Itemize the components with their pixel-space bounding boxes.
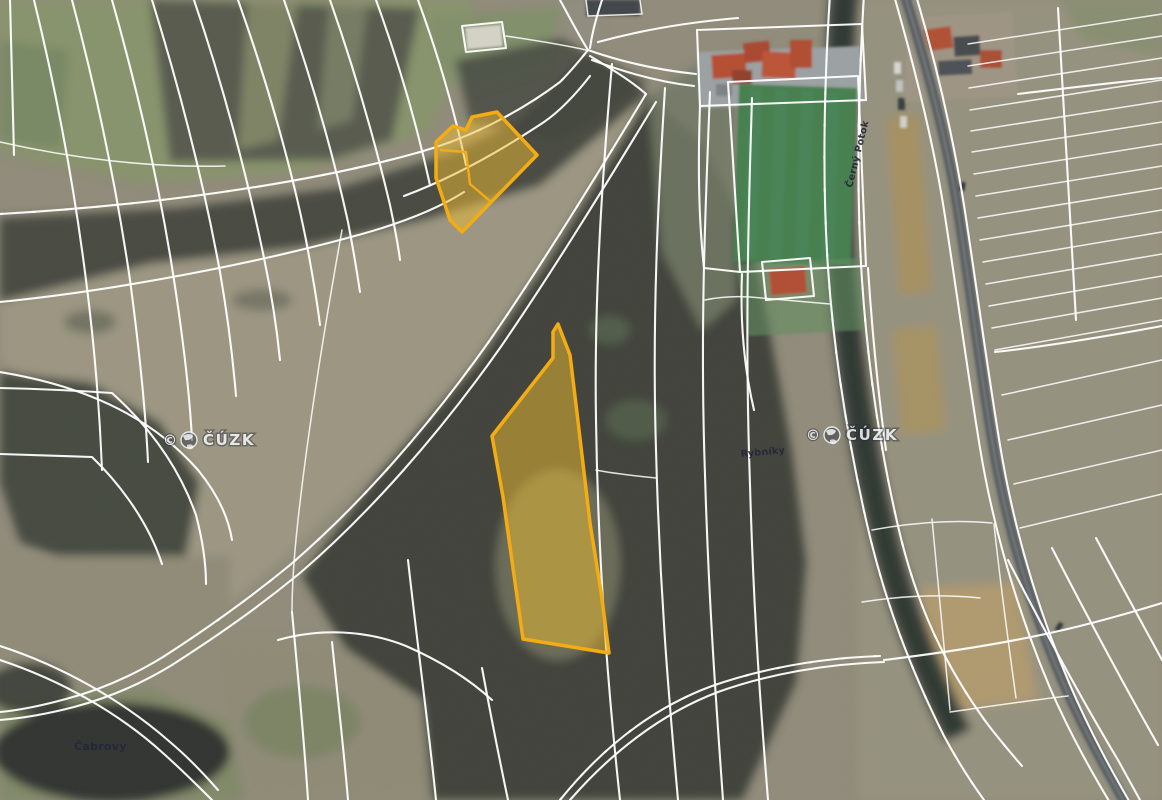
cuzk-watermark-west: © ČÚZK [163, 430, 255, 449]
cuzk-watermark-text: ČÚZK [846, 425, 898, 444]
cadastral-map-canvas[interactable]: Čabrovy Rybníky Černý Potok © ČÚZK © ČÚZ… [0, 0, 1162, 800]
cuzk-watermark-east: © ČÚZK [806, 425, 898, 444]
cuzk-watermark-text: ČÚZK [203, 430, 255, 449]
aerial-terrain [0, 0, 1162, 800]
copyright-symbol: © [806, 428, 820, 444]
photo-grain [0, 0, 1162, 800]
map-viewport[interactable]: Čabrovy Rybníky Černý Potok © ČÚZK © ČÚZ… [0, 0, 1162, 800]
copyright-symbol: © [163, 433, 177, 449]
place-label-cabrovy: Čabrovy [74, 740, 127, 753]
